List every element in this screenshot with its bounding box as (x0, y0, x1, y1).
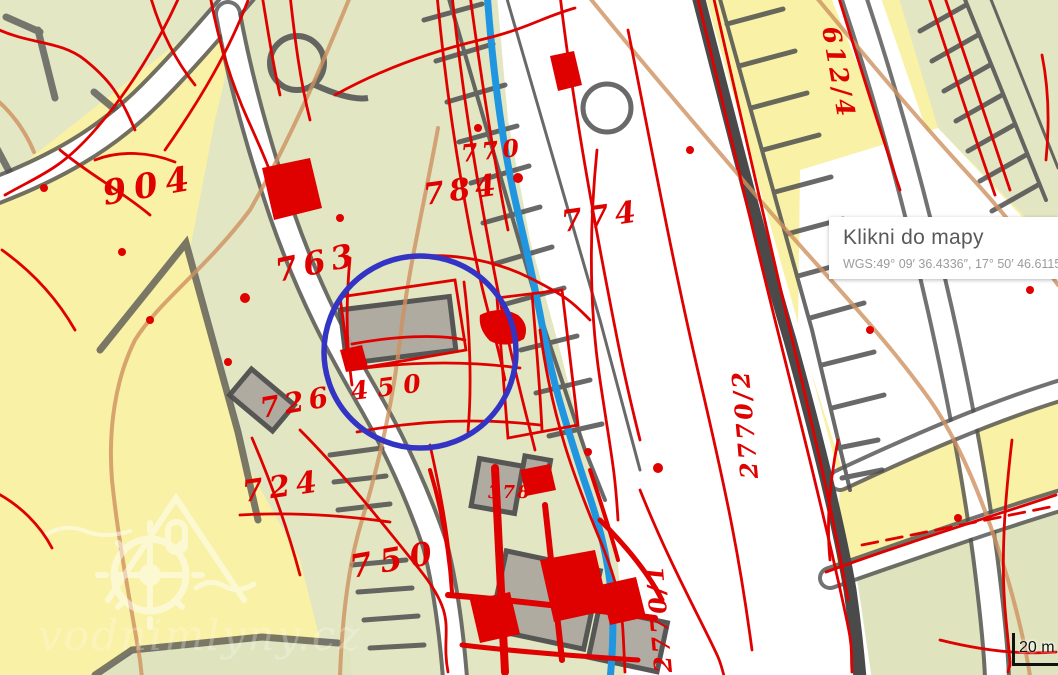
map-info-box: Klikni do mapy WGS:49° 09′ 36.4336″, 17°… (829, 217, 1058, 279)
parcel-label: 378 (488, 482, 532, 503)
scale-bar-label: 20 m (1015, 633, 1058, 657)
info-box-coordinates: WGS:49° 09′ 36.4336″, 17° 50′ 46.6115″ (843, 257, 1048, 271)
info-box-title: Klikni do mapy (843, 226, 1048, 250)
watermark-site-text: vodnimlyny.cz (38, 611, 362, 660)
map-canvas[interactable]: vodnimlyny.cz (0, 0, 1058, 675)
map-viewport[interactable]: vodnimlyny.cz (0, 0, 1058, 675)
scale-bar: 20 m (1012, 633, 1058, 666)
